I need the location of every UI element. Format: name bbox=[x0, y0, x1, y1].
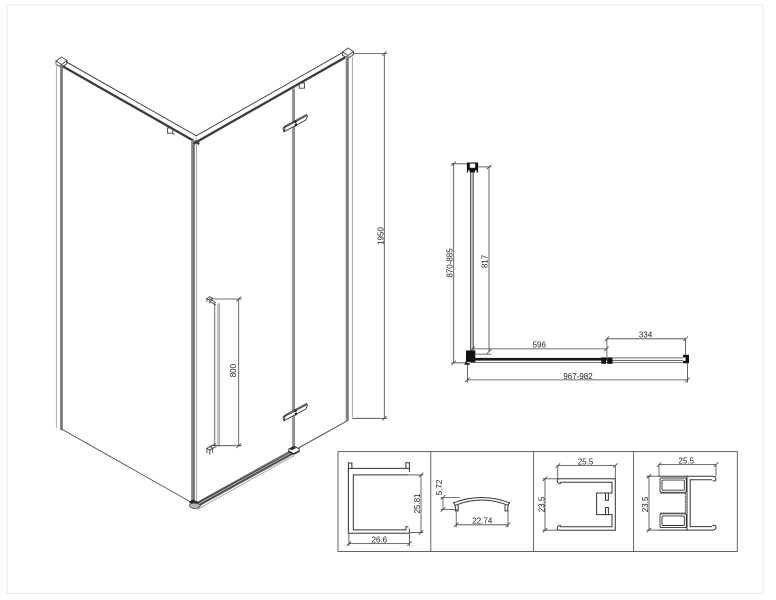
svg-text:23.5: 23.5 bbox=[537, 496, 546, 512]
svg-text:800: 800 bbox=[229, 363, 238, 377]
svg-text:5.72: 5.72 bbox=[435, 479, 444, 495]
svg-text:23.5: 23.5 bbox=[641, 496, 650, 512]
svg-text:25.81: 25.81 bbox=[413, 493, 422, 514]
svg-text:25.5: 25.5 bbox=[578, 458, 594, 467]
svg-text:967-982: 967-982 bbox=[563, 372, 593, 381]
svg-text:26.6: 26.6 bbox=[372, 536, 388, 545]
svg-text:1950: 1950 bbox=[377, 227, 386, 245]
svg-text:334: 334 bbox=[639, 330, 653, 339]
svg-text:596: 596 bbox=[533, 340, 547, 349]
svg-text:22.74: 22.74 bbox=[472, 517, 493, 526]
svg-text:817: 817 bbox=[481, 254, 490, 268]
svg-text:25.5: 25.5 bbox=[679, 457, 695, 466]
svg-text:870-885: 870-885 bbox=[445, 248, 454, 278]
